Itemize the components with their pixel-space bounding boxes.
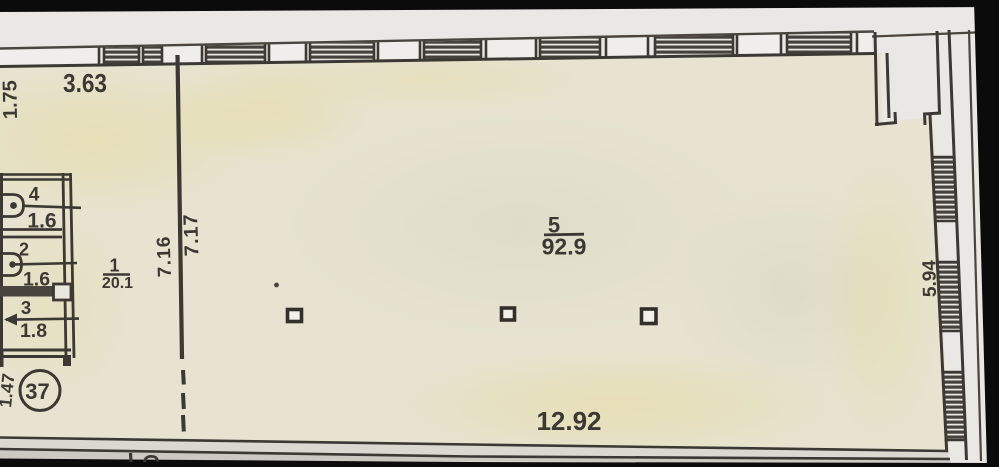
svg-text:4: 4 bbox=[29, 185, 40, 206]
svg-text:5.94: 5.94 bbox=[919, 260, 941, 298]
svg-text:3: 3 bbox=[21, 297, 31, 318]
svg-text:1.8: 1.8 bbox=[20, 320, 47, 342]
svg-text:2: 2 bbox=[19, 240, 29, 260]
svg-text:92.9: 92.9 bbox=[542, 234, 587, 260]
svg-text:1.75: 1.75 bbox=[0, 80, 22, 119]
svg-text:7.16: 7.16 bbox=[154, 235, 176, 277]
svg-text:3.63: 3.63 bbox=[63, 68, 107, 98]
svg-text:37: 37 bbox=[25, 379, 49, 404]
svg-text:7.17: 7.17 bbox=[180, 213, 203, 257]
svg-text:1.6: 1.6 bbox=[23, 269, 50, 291]
svg-text:12.92: 12.92 bbox=[536, 406, 601, 436]
svg-text:1.6: 1.6 bbox=[27, 210, 56, 233]
svg-text:1: 1 bbox=[109, 256, 119, 276]
svg-text:20.1: 20.1 bbox=[102, 275, 133, 292]
